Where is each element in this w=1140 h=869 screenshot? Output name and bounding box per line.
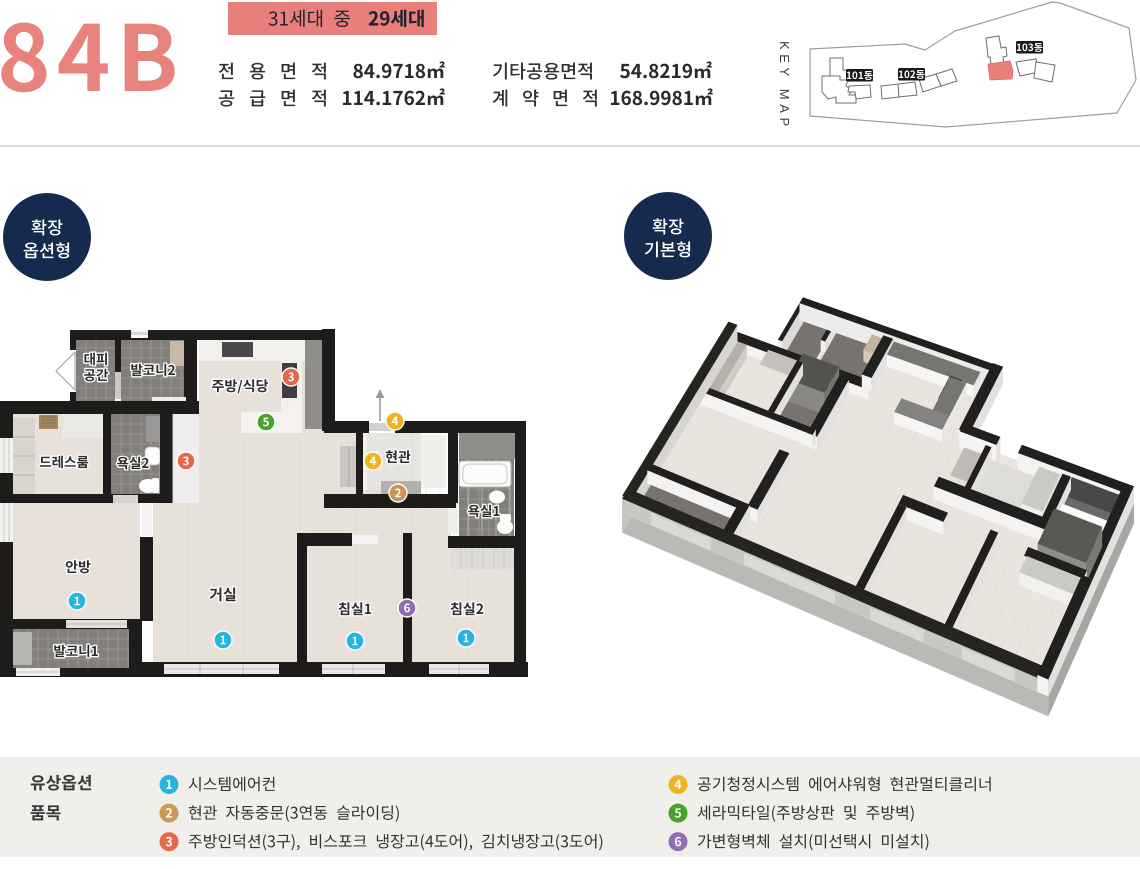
svg-text:KEY MAP: KEY MAP [777,41,792,131]
